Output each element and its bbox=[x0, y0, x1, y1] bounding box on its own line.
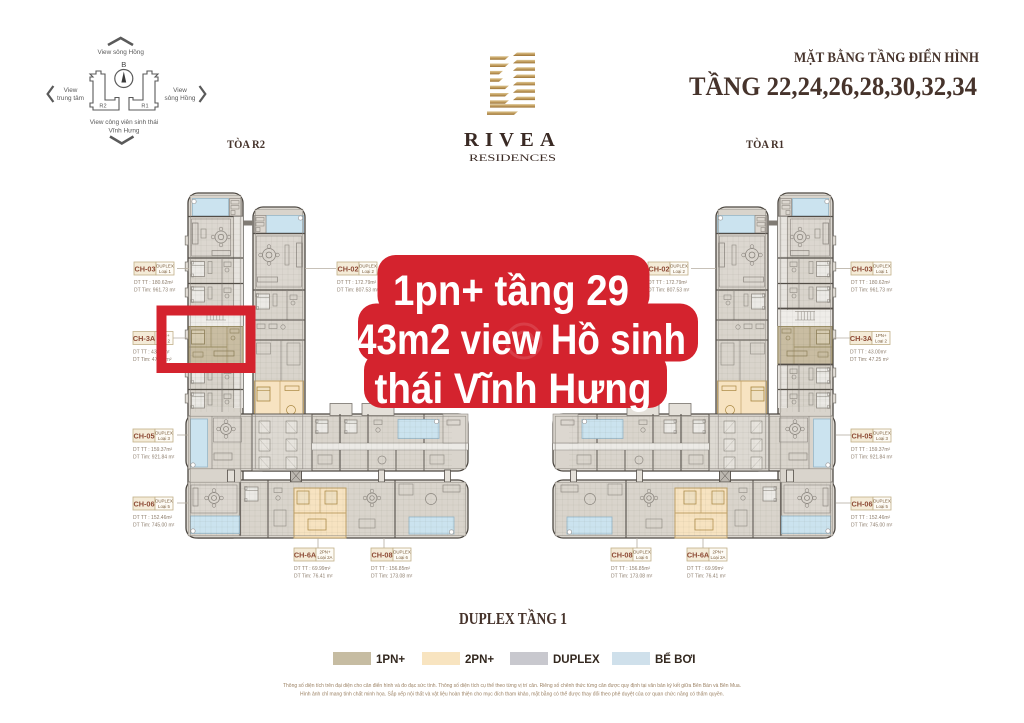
svg-text:DUPLEX: DUPLEX bbox=[873, 264, 891, 269]
svg-text:R1: R1 bbox=[141, 104, 148, 110]
svg-text:1PN+: 1PN+ bbox=[875, 333, 887, 338]
svg-text:2PN+: 2PN+ bbox=[465, 654, 494, 666]
svg-text:2PN+: 2PN+ bbox=[319, 550, 331, 555]
svg-text:sông Hồng: sông Hồng bbox=[165, 93, 196, 102]
svg-text:thái Vĩnh Hưng: thái Vĩnh Hưng bbox=[375, 365, 652, 413]
svg-text:DUPLEX: DUPLEX bbox=[873, 499, 891, 504]
svg-text:CH-6A: CH-6A bbox=[294, 551, 317, 560]
svg-text:CH-05: CH-05 bbox=[851, 432, 872, 441]
svg-text:DT Tim: 961.73 m²: DT Tim: 961.73 m² bbox=[851, 288, 893, 294]
svg-text:CH-03: CH-03 bbox=[134, 265, 155, 274]
svg-text:Loại 2: Loại 2 bbox=[673, 269, 686, 274]
svg-text:DT TT : 159.37m²: DT TT : 159.37m² bbox=[851, 447, 891, 453]
svg-text:View: View bbox=[173, 87, 187, 94]
svg-text:DT TT : 69.99m²: DT TT : 69.99m² bbox=[687, 566, 724, 572]
svg-text:Loại 2A: Loại 2A bbox=[318, 555, 333, 560]
svg-text:BỂ BƠI: BỂ BƠI bbox=[655, 653, 695, 666]
svg-text:DT Tim: 745.00 m²: DT Tim: 745.00 m² bbox=[133, 523, 175, 529]
svg-text:CH-06: CH-06 bbox=[851, 500, 872, 509]
svg-text:trung tâm: trung tâm bbox=[57, 95, 84, 102]
svg-text:43m2 view Hồ sinh: 43m2 view Hồ sinh bbox=[356, 316, 686, 364]
svg-text:DT Tim: 921.84 m²: DT Tim: 921.84 m² bbox=[851, 455, 893, 461]
svg-text:CH-3A: CH-3A bbox=[133, 334, 156, 343]
svg-text:DT Tim: 173.08 m²: DT Tim: 173.08 m² bbox=[611, 574, 653, 580]
svg-text:CH-08: CH-08 bbox=[371, 551, 392, 560]
svg-text:CH-03: CH-03 bbox=[851, 265, 872, 274]
svg-text:DT TT : 180.62m²: DT TT : 180.62m² bbox=[851, 280, 891, 286]
svg-text:Loại 1: Loại 1 bbox=[876, 269, 889, 274]
svg-text:DUPLEX: DUPLEX bbox=[873, 431, 891, 436]
svg-text:Loại 2A: Loại 2A bbox=[711, 555, 726, 560]
svg-text:Loại 6: Loại 6 bbox=[636, 555, 649, 560]
svg-text:DUPLEX: DUPLEX bbox=[155, 499, 173, 504]
svg-text:1pn+ tầng 29: 1pn+ tầng 29 bbox=[393, 267, 629, 315]
svg-text:DUPLEX: DUPLEX bbox=[393, 550, 411, 555]
svg-text:Loại 5: Loại 5 bbox=[876, 504, 889, 509]
svg-text:DUPLEX: DUPLEX bbox=[155, 431, 173, 436]
svg-text:View công viên sinh thái: View công viên sinh thái bbox=[90, 119, 158, 126]
svg-text:CH-6A: CH-6A bbox=[687, 551, 710, 560]
svg-text:RESIDENCES: RESIDENCES bbox=[469, 154, 556, 164]
svg-text:Hình ảnh chỉ mang tính chất mi: Hình ảnh chỉ mang tính chất minh họa. Sắ… bbox=[300, 691, 724, 698]
svg-text:CH-3A: CH-3A bbox=[850, 334, 873, 343]
svg-text:Loại 1: Loại 1 bbox=[159, 269, 172, 274]
svg-text:R2: R2 bbox=[99, 104, 106, 110]
svg-text:DT TT : 152.46m²: DT TT : 152.46m² bbox=[851, 515, 891, 521]
svg-text:Loại 6: Loại 6 bbox=[396, 555, 409, 560]
svg-text:Loại 2: Loại 2 bbox=[875, 339, 888, 344]
svg-text:2PN+: 2PN+ bbox=[712, 550, 724, 555]
svg-text:DT Tim: 921.84 m²: DT Tim: 921.84 m² bbox=[133, 455, 175, 461]
svg-text:View: View bbox=[64, 87, 78, 94]
svg-text:View sông Hồng: View sông Hồng bbox=[97, 47, 144, 56]
svg-text:TẦNG 22,24,26,28,30,32,34: TẦNG 22,24,26,28,30,32,34 bbox=[689, 72, 977, 101]
svg-text:DUPLEX: DUPLEX bbox=[359, 264, 377, 269]
svg-text:DUPLEX: DUPLEX bbox=[156, 264, 174, 269]
svg-text:CH-08: CH-08 bbox=[611, 551, 632, 560]
svg-text:DT Tim: 807.53 m²: DT Tim: 807.53 m² bbox=[337, 288, 379, 294]
svg-text:TÒA R1: TÒA R1 bbox=[746, 137, 784, 151]
svg-text:DT TT : 152.46m²: DT TT : 152.46m² bbox=[133, 515, 173, 521]
svg-text:DT TT : 156.85m²: DT TT : 156.85m² bbox=[371, 566, 411, 572]
svg-text:DT Tim: 76.41 m²: DT Tim: 76.41 m² bbox=[687, 574, 726, 580]
svg-text:CH-02: CH-02 bbox=[337, 265, 358, 274]
svg-text:Loại 5: Loại 5 bbox=[158, 504, 171, 509]
svg-text:DUPLEX: DUPLEX bbox=[633, 550, 651, 555]
svg-text:DT Tim: 47.25 m²: DT Tim: 47.25 m² bbox=[850, 357, 889, 363]
svg-text:Loại 2: Loại 2 bbox=[362, 269, 375, 274]
svg-text:Thông số diện tích trên đại di: Thông số diện tích trên đại diện cho căn… bbox=[283, 682, 741, 689]
svg-text:DT Tim: 745.00 m²: DT Tim: 745.00 m² bbox=[851, 523, 893, 529]
svg-text:DUPLEX: DUPLEX bbox=[670, 264, 688, 269]
svg-text:DT TT : 172.79m²: DT TT : 172.79m² bbox=[648, 280, 688, 286]
svg-text:DUPLEX: DUPLEX bbox=[553, 654, 600, 666]
svg-text:Vĩnh Hưng: Vĩnh Hưng bbox=[109, 128, 140, 135]
svg-text:DT TT : 69.99m²: DT TT : 69.99m² bbox=[294, 566, 331, 572]
svg-text:Loại 3: Loại 3 bbox=[158, 436, 171, 441]
svg-text:CH-02: CH-02 bbox=[648, 265, 669, 274]
svg-text:DT TT : 156.85m²: DT TT : 156.85m² bbox=[611, 566, 651, 572]
svg-text:TÒA R2: TÒA R2 bbox=[227, 137, 265, 151]
svg-text:1PN+: 1PN+ bbox=[376, 654, 405, 666]
svg-text:DT Tim: 173.08 m²: DT Tim: 173.08 m² bbox=[371, 574, 413, 580]
svg-text:RIVEA: RIVEA bbox=[464, 129, 561, 151]
svg-text:DT Tim: 76.41 m²: DT Tim: 76.41 m² bbox=[294, 574, 333, 580]
svg-text:DT TT : 159.37m²: DT TT : 159.37m² bbox=[133, 447, 173, 453]
svg-text:DT TT : 180.62m²: DT TT : 180.62m² bbox=[134, 280, 174, 286]
svg-text:DT TT : 172.79m²: DT TT : 172.79m² bbox=[337, 280, 377, 286]
svg-text:DT Tim: 807.53 m²: DT Tim: 807.53 m² bbox=[648, 288, 690, 294]
svg-text:B: B bbox=[121, 60, 126, 69]
svg-text:Loại 3: Loại 3 bbox=[876, 436, 889, 441]
svg-text:CH-05: CH-05 bbox=[133, 432, 154, 441]
svg-text:CH-06: CH-06 bbox=[133, 500, 154, 509]
svg-text:DT Tim: 961.73 m²: DT Tim: 961.73 m² bbox=[134, 288, 176, 294]
svg-text:MẶT BẰNG TẦNG ĐIỂN HÌNH: MẶT BẰNG TẦNG ĐIỂN HÌNH bbox=[794, 48, 979, 66]
svg-text:DUPLEX TẦNG 1: DUPLEX TẦNG 1 bbox=[459, 609, 567, 628]
svg-text:DT TT : 43.00m²: DT TT : 43.00m² bbox=[850, 350, 887, 356]
